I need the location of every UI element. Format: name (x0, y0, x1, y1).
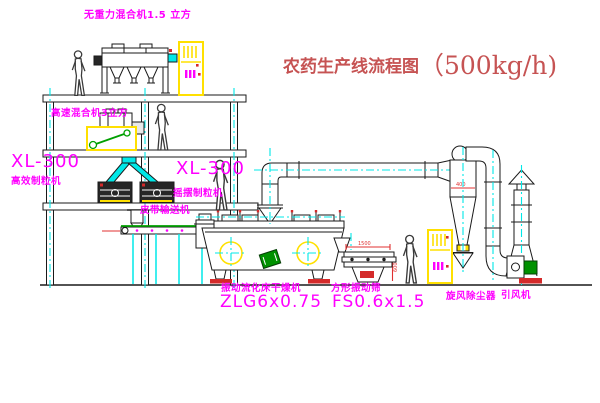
sieve-vibrator (360, 271, 374, 278)
control-cabinet-sieve (428, 230, 452, 283)
induced-draft-fan (507, 256, 542, 284)
fan-motor (524, 261, 537, 274)
exhaust-duct (257, 160, 452, 221)
dryer-lid-covers (222, 215, 334, 221)
label-granulator-left-model: XL-300 (11, 153, 80, 171)
label-granulator-right-model: XL-300 (176, 160, 245, 178)
label-high-speed-mixer: 高速混合机3立方 (51, 109, 128, 119)
label-sieve-model: FS0.6x1.5 (332, 294, 425, 311)
mixer-discharge-hoppers (110, 67, 158, 83)
cyclone-dim-text: 400 (456, 182, 466, 188)
control-cabinet-top (179, 42, 203, 95)
gravity-free-mixer (94, 44, 177, 93)
page-title: 农药生产线流程图（500kg/h) (283, 46, 557, 82)
worker-second-floor (155, 104, 168, 150)
dryer-base-right (308, 279, 330, 284)
label-dryer-model: ZLG6x0.75 (220, 294, 322, 311)
worker-near-sieve (403, 235, 417, 283)
flow-diagram-page: 400 1500 (0, 0, 600, 403)
title-text: 农药生产线流程图 (283, 57, 419, 76)
title-capacity: （500kg/h) (419, 51, 557, 80)
label-granulator-right-name: 摇摆制粒机 (173, 189, 223, 199)
vibrating-sieve: 1500 600 (342, 241, 399, 282)
cabinet-logo (185, 70, 195, 78)
sieve-length-dim: 1500 (358, 241, 371, 247)
worker-top-platform (72, 51, 85, 96)
label-gravity-free-mixer: 无重力混合机1.5 立方 (84, 11, 191, 21)
label-fan: 引风机 (501, 291, 531, 301)
sieve-height-dim: 600 (393, 262, 399, 272)
cabinet-logo (433, 262, 443, 270)
granulator-left (98, 182, 132, 203)
label-belt-conveyor: 皮带输送机 (140, 206, 190, 216)
fan-base (519, 278, 542, 284)
y-feed-duct (106, 157, 158, 182)
label-cyclone: 旋风除尘器 (446, 292, 496, 302)
granulator-right (140, 182, 174, 203)
label-granulator-left-name: 高效制粒机 (11, 177, 61, 187)
